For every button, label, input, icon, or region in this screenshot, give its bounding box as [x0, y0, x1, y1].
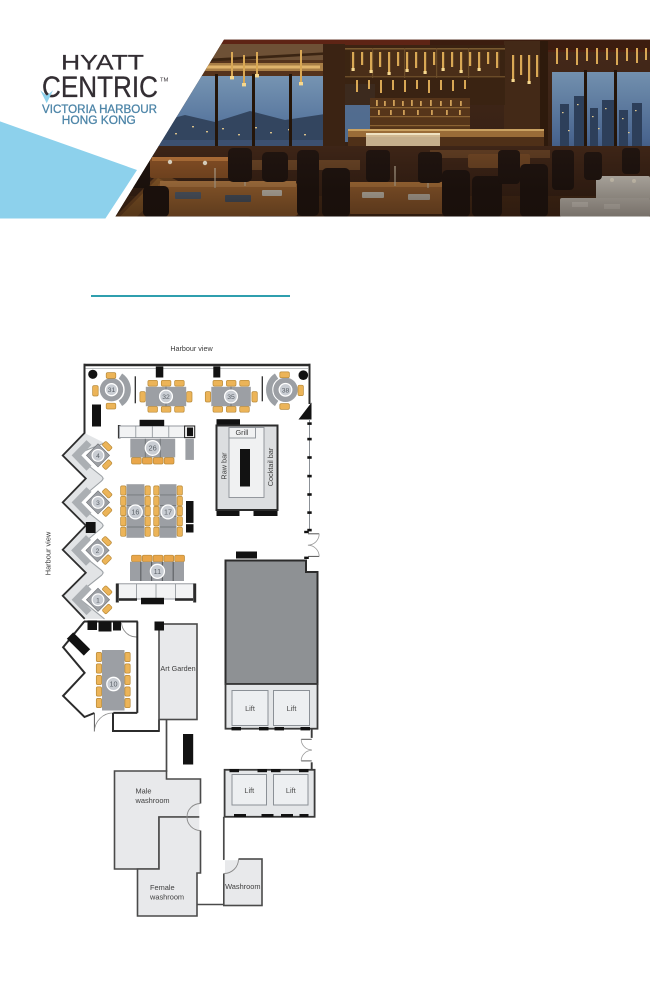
svg-text:Cocktail bar: Cocktail bar — [266, 447, 275, 486]
svg-text:Raw bar: Raw bar — [220, 452, 229, 480]
svg-text:Lift: Lift — [245, 704, 255, 713]
svg-text:16: 16 — [131, 508, 139, 517]
svg-text:35: 35 — [227, 394, 235, 401]
svg-text:Lift: Lift — [244, 786, 254, 795]
svg-text:3: 3 — [96, 500, 100, 507]
svg-text:Art Garden: Art Garden — [160, 664, 195, 673]
svg-text:CENTRIC: CENTRIC — [42, 71, 158, 104]
svg-text:TM: TM — [160, 78, 169, 84]
svg-text:Harbour view: Harbour view — [170, 344, 213, 353]
svg-text:Grill: Grill — [236, 428, 249, 437]
svg-text:10: 10 — [110, 680, 118, 689]
svg-text:Male: Male — [136, 787, 152, 796]
svg-text:38: 38 — [282, 387, 290, 394]
svg-text:Lift: Lift — [287, 704, 297, 713]
svg-text:Harbour view: Harbour view — [44, 531, 53, 575]
svg-text:Lift: Lift — [286, 786, 296, 795]
svg-text:Female: Female — [150, 883, 175, 892]
svg-text:2: 2 — [96, 548, 100, 555]
svg-text:4: 4 — [96, 453, 100, 460]
svg-text:HONG KONG: HONG KONG — [62, 113, 136, 127]
svg-text:31: 31 — [108, 387, 116, 394]
svg-text:Washroom: Washroom — [225, 882, 260, 891]
svg-text:1: 1 — [96, 597, 100, 604]
svg-text:washroom: washroom — [149, 892, 184, 901]
svg-text:washroom: washroom — [135, 796, 170, 805]
svg-text:17: 17 — [164, 508, 172, 517]
svg-text:26: 26 — [148, 444, 156, 453]
svg-text:11: 11 — [154, 567, 161, 576]
svg-text:32: 32 — [162, 394, 170, 401]
